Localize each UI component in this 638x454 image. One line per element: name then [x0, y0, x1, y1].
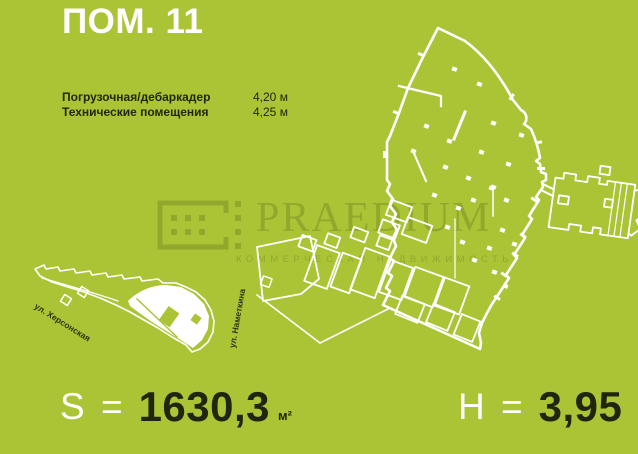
spec-value: 4,25 м [253, 105, 288, 120]
floor-plan-right-wing [549, 160, 638, 240]
spec-value: 4,20 м [253, 90, 288, 105]
spec-row: Погрузочная/дебаркадер 4,20 м [62, 90, 288, 105]
spec-label: Технические помещения [62, 105, 253, 120]
mini-map [35, 265, 214, 352]
area-value: 1630,3 [139, 384, 270, 430]
page-title: ПОМ. 11 [62, 2, 203, 42]
area-metric: S = 1630,3 м² [60, 384, 292, 430]
area-prefix: S = [60, 384, 126, 430]
spec-row: Технические помещения 4,25 м [62, 105, 288, 120]
ceiling-height-metric: H = 3,95 [458, 384, 622, 430]
area-unit: м² [278, 408, 292, 423]
height-value: 3,95 [539, 384, 623, 430]
height-prefix: H = [458, 384, 526, 430]
slide: ПОМ. 11 Погрузочная/дебаркадер 4,20 м Те… [0, 0, 638, 454]
spec-list: Погрузочная/дебаркадер 4,20 м Технически… [62, 90, 288, 120]
spec-label: Погрузочная/дебаркадер [62, 90, 253, 105]
floor-plan-room-cluster [257, 200, 480, 343]
